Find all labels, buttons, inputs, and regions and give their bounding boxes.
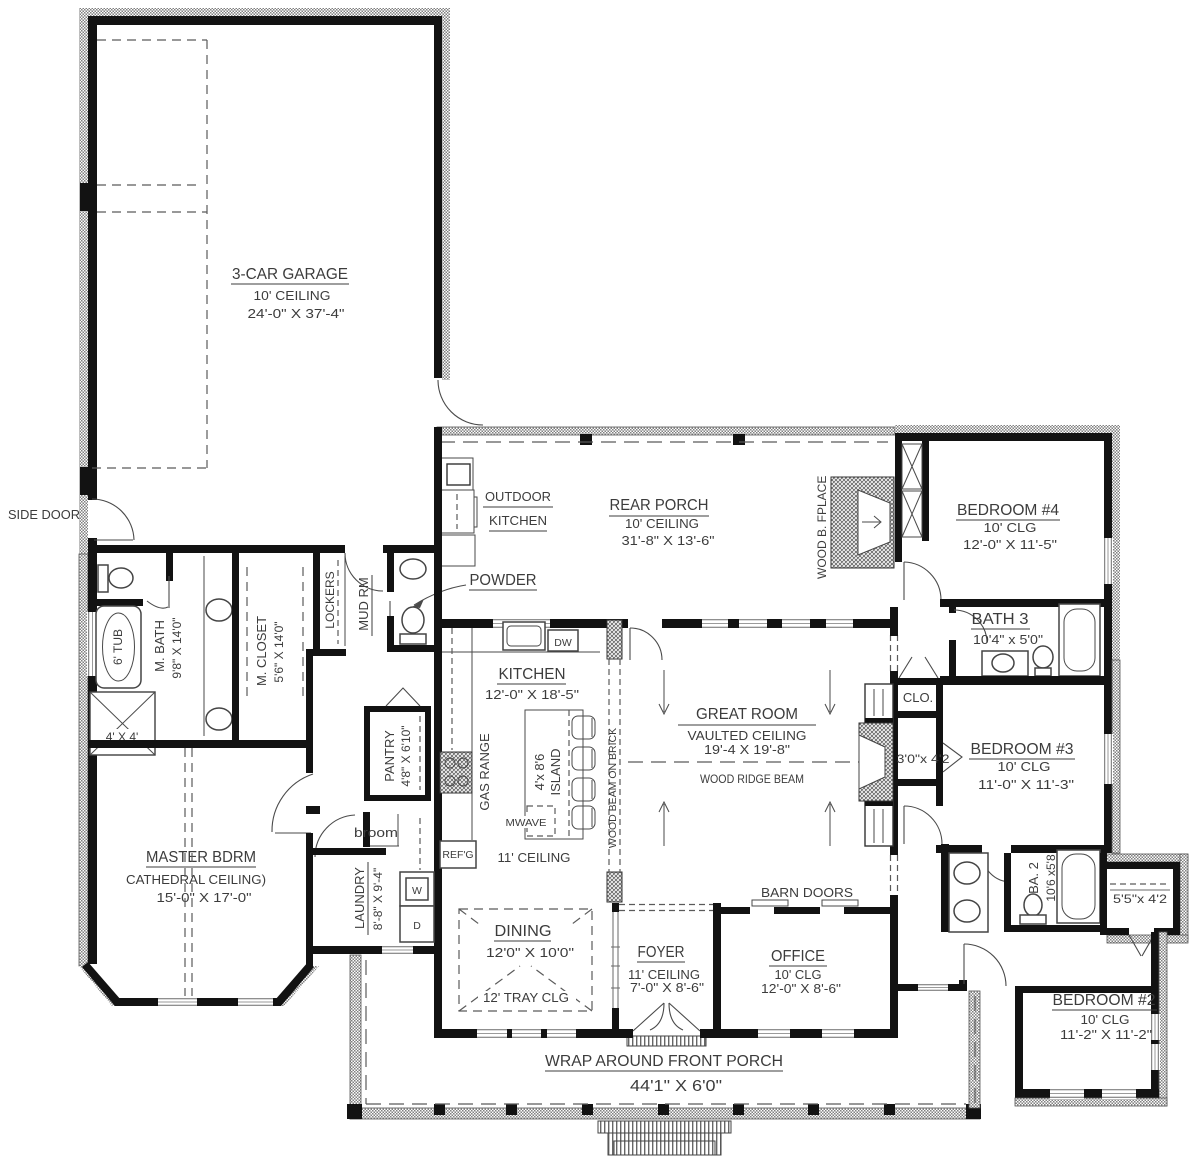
svg-text:ISLAND: ISLAND: [548, 749, 563, 796]
svg-text:W: W: [412, 885, 422, 897]
svg-text:WOOD B. FPLACE: WOOD B. FPLACE: [815, 476, 829, 579]
svg-text:9'8" X 14'0": 9'8" X 14'0": [170, 617, 184, 678]
svg-text:44'1" X 6'0": 44'1" X 6'0": [630, 1078, 722, 1095]
svg-text:DINING: DINING: [495, 923, 552, 940]
svg-text:VAULTED CEILING: VAULTED CEILING: [688, 728, 807, 743]
svg-text:19'-4 X 19'-8": 19'-4 X 19'-8": [704, 742, 790, 757]
svg-text:10' CEILING: 10' CEILING: [254, 288, 331, 303]
svg-text:11' CEILING: 11' CEILING: [498, 850, 571, 865]
svg-text:broom: broom: [354, 825, 398, 840]
svg-text:12'-0" X 11'-5": 12'-0" X 11'-5": [963, 537, 1057, 552]
svg-text:4'8" X 6'10": 4'8" X 6'10": [399, 725, 413, 786]
svg-text:WOOD RIDGE BEAM: WOOD RIDGE BEAM: [700, 772, 804, 786]
svg-text:LOCKERS: LOCKERS: [323, 571, 337, 628]
svg-text:KITCHEN: KITCHEN: [499, 666, 566, 683]
svg-text:15'-0" X 17'-0": 15'-0" X 17'-0": [157, 890, 252, 905]
svg-text:10' CEILING: 10' CEILING: [625, 516, 699, 531]
svg-text:MWAVE: MWAVE: [506, 817, 547, 829]
svg-text:MUD RM: MUD RM: [356, 577, 371, 630]
svg-text:10'4" x 5'0": 10'4" x 5'0": [973, 632, 1043, 647]
svg-text:BEDROOM #4: BEDROOM #4: [957, 502, 1059, 519]
svg-text:BARN DOORS: BARN DOORS: [761, 885, 853, 900]
svg-text:10' CLG: 10' CLG: [998, 759, 1051, 774]
svg-text:10'6 x5'8: 10'6 x5'8: [1044, 854, 1058, 902]
svg-text:POWDER: POWDER: [470, 572, 537, 589]
svg-text:11'-2" X 11'-2": 11'-2" X 11'-2": [1060, 1027, 1152, 1042]
svg-text:CATHEDRAL CEILING): CATHEDRAL CEILING): [126, 872, 266, 887]
svg-text:4'x 8'6: 4'x 8'6: [532, 754, 547, 791]
svg-text:5'6" X 14'0": 5'6" X 14'0": [272, 621, 286, 682]
svg-text:LAUNDRY: LAUNDRY: [352, 867, 367, 929]
svg-text:7'-0" X 8'-6": 7'-0" X 8'-6": [630, 980, 704, 995]
svg-text:DW: DW: [554, 637, 572, 649]
svg-text:PANTRY: PANTRY: [382, 730, 397, 782]
svg-text:10' CLG: 10' CLG: [984, 520, 1037, 535]
svg-text:M. CLOSET: M. CLOSET: [254, 616, 269, 686]
svg-text:OUTDOOR: OUTDOOR: [485, 489, 551, 504]
svg-text:24'-0" X 37'-4": 24'-0" X 37'-4": [248, 306, 345, 321]
svg-text:8'-8" X 9'-4": 8'-8" X 9'-4": [371, 868, 385, 930]
svg-text:GAS RANGE: GAS RANGE: [477, 733, 492, 811]
svg-text:BEDROOM #3: BEDROOM #3: [971, 741, 1074, 758]
svg-text:D: D: [413, 920, 421, 932]
svg-text:12'0" X 10'0": 12'0" X 10'0": [486, 945, 574, 960]
svg-text:11'-0" X 11'-3": 11'-0" X 11'-3": [978, 777, 1074, 792]
svg-text:12'-0" X 8'-6": 12'-0" X 8'-6": [761, 981, 841, 996]
svg-text:BEDROOM #2: BEDROOM #2: [1053, 992, 1156, 1009]
svg-text:31'-8" X 13'-6": 31'-8" X 13'-6": [622, 533, 715, 548]
svg-text:10' CLG: 10' CLG: [1081, 1012, 1130, 1027]
svg-text:CLO.: CLO.: [903, 690, 933, 705]
svg-text:WRAP AROUND FRONT PORCH: WRAP AROUND FRONT PORCH: [545, 1053, 783, 1070]
svg-text:REAR PORCH: REAR PORCH: [610, 497, 709, 514]
svg-text:12'-0" X 18'-5": 12'-0" X 18'-5": [485, 687, 579, 702]
svg-text:BATH 3: BATH 3: [972, 611, 1029, 628]
svg-text:3'0"x 4'2: 3'0"x 4'2: [897, 752, 950, 766]
svg-text:5'5"x 4'2: 5'5"x 4'2: [1113, 892, 1167, 906]
svg-text:6' TUB: 6' TUB: [111, 629, 125, 665]
svg-text:M. BATH: M. BATH: [152, 620, 167, 672]
svg-text:GREAT ROOM: GREAT ROOM: [696, 706, 798, 723]
svg-text:10' CLG: 10' CLG: [775, 967, 822, 982]
svg-text:3-CAR GARAGE: 3-CAR GARAGE: [232, 266, 348, 283]
svg-text:KITCHEN: KITCHEN: [489, 513, 547, 528]
svg-text:12' TRAY CLG: 12' TRAY CLG: [483, 990, 569, 1005]
svg-text:WOOD BEAM ON BRICK: WOOD BEAM ON BRICK: [607, 728, 619, 848]
svg-text:FOYER: FOYER: [638, 944, 685, 961]
svg-text:SIDE DOOR: SIDE DOOR: [8, 507, 80, 522]
svg-text:REF'G: REF'G: [442, 849, 473, 861]
svg-text:OFFICE: OFFICE: [771, 948, 825, 965]
svg-text:BA. 2: BA. 2: [1026, 862, 1041, 894]
svg-text:MASTER BDRM: MASTER BDRM: [146, 849, 256, 866]
